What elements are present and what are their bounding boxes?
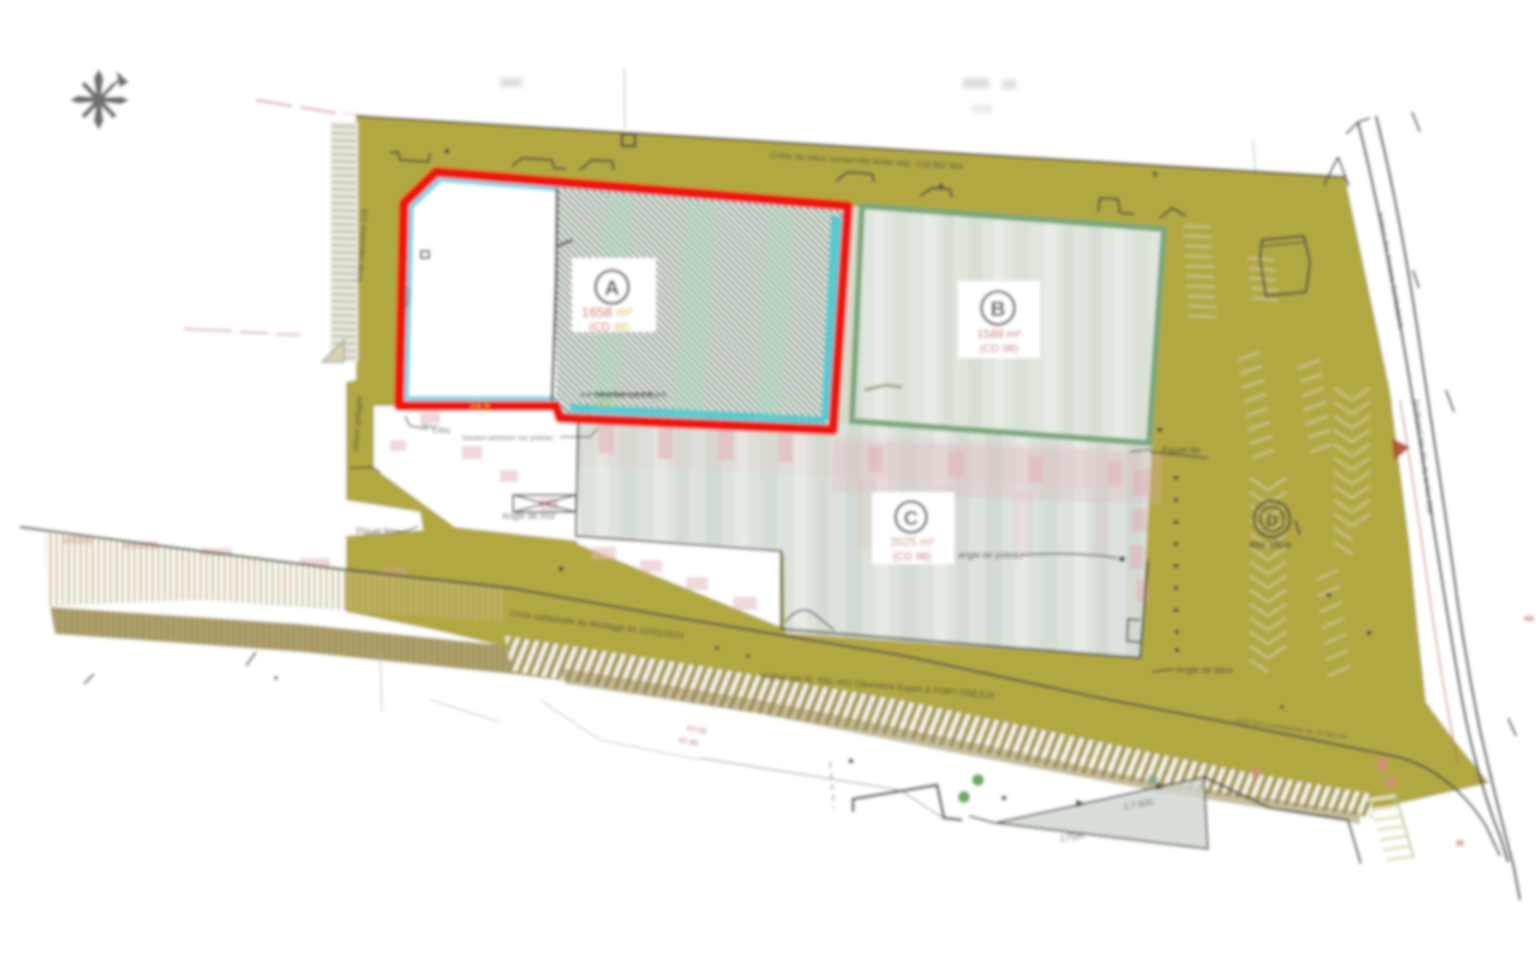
svg-text:Angle de mur: Angle de mur	[502, 511, 556, 521]
svg-text:515: 515	[596, 398, 611, 408]
svg-text:(CD 98): (CD 98)	[893, 551, 932, 563]
svg-text:Angle de talus: Angle de talus	[1176, 665, 1234, 675]
svg-text:(CD 98): (CD 98)	[589, 320, 631, 334]
svg-text:sto Vico: sto Vico	[1249, 539, 1292, 551]
svg-text:Clou: Clou	[432, 425, 451, 435]
svg-text:1589 m²: 1589 m²	[977, 327, 1021, 341]
svg-text:(CD 98): (CD 98)	[980, 343, 1019, 355]
svg-text:24.9: 24.9	[470, 401, 490, 412]
svg-text:A: A	[604, 277, 619, 300]
svg-text:C: C	[904, 508, 918, 530]
svg-text:D: D	[1266, 513, 1278, 530]
svg-text:travaux peinture sur poteau: travaux peinture sur poteau	[462, 433, 553, 442]
svg-text:B: B	[990, 298, 1005, 321]
svg-text:1658 m²: 1658 m²	[581, 304, 633, 320]
svg-text:Piquet fer: Piquet fer	[356, 526, 395, 536]
svg-text:angle de poteau: angle de poteau	[958, 550, 1023, 560]
svg-text:Piquet fer: Piquet fer	[1162, 445, 1201, 455]
svg-text:2025 m²: 2025 m²	[890, 535, 934, 549]
